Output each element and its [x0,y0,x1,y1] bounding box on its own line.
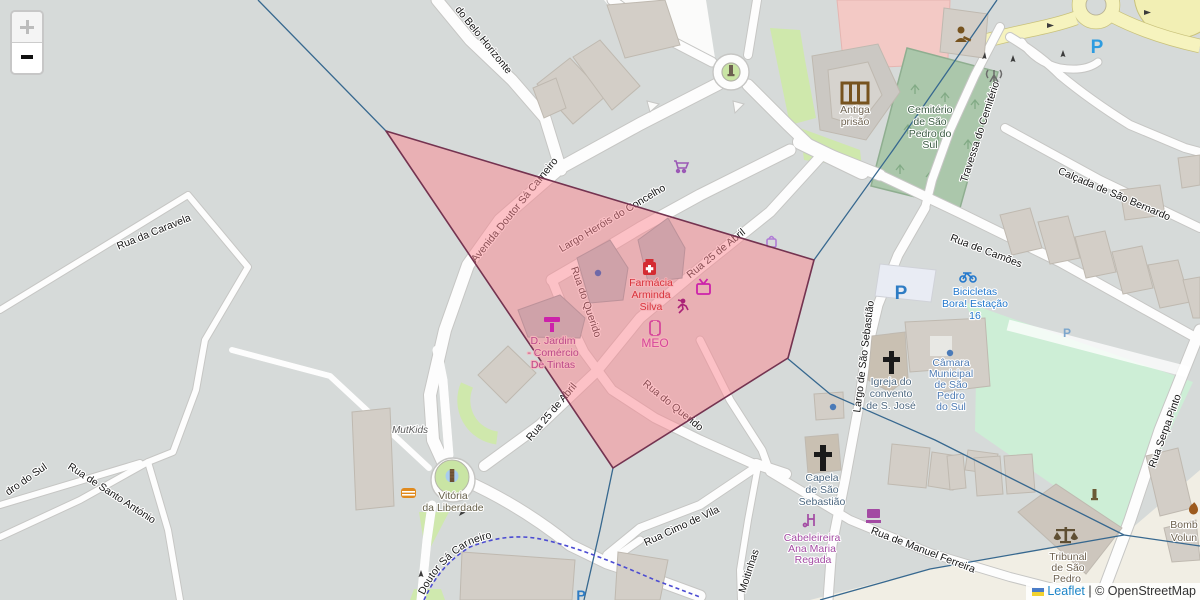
svg-text:16: 16 [969,310,981,322]
svg-text:- Comércio: - Comércio [527,347,579,359]
svg-text:convento: convento [870,388,913,400]
svg-text:da Liberdade: da Liberdade [422,502,483,514]
svg-text:P: P [576,587,585,600]
svg-text:Sebastião: Sebastião [799,496,846,508]
svg-text:Arminda: Arminda [631,289,670,301]
svg-text:Sul: Sul [922,139,937,151]
svg-text:de S. José: de S. José [866,400,916,412]
svg-text:Silva: Silva [640,301,663,313]
svg-text:MEO: MEO [641,336,668,350]
svg-text:Regada: Regada [795,554,832,566]
svg-text:Antiga: Antiga [840,104,870,116]
svg-text:D. Jardim: D. Jardim [531,335,576,347]
svg-text:P: P [1091,37,1104,58]
svg-text:Farmácia: Farmácia [629,277,673,289]
svg-text:Bora! Estação: Bora! Estação [942,298,1008,310]
svg-text:de São: de São [805,484,838,496]
svg-text:Volun: Volun [1171,532,1197,544]
svg-text:P: P [895,283,908,304]
svg-text:MutKids: MutKids [392,425,428,436]
svg-text:de São: de São [913,116,946,128]
svg-text:Igreja do: Igreja do [871,376,912,388]
svg-text:do Sul: do Sul [936,401,966,413]
svg-text:Bomb: Bomb [1170,519,1198,531]
svg-text:Vitória: Vitória [438,490,468,502]
svg-text:prisão: prisão [841,116,870,128]
svg-text:Capela: Capela [805,472,838,484]
svg-text:De Tintas: De Tintas [531,359,575,371]
svg-text:P: P [1063,326,1071,340]
svg-text:Bicicletas: Bicicletas [953,286,997,298]
svg-text:Cemitério: Cemitério [908,104,953,116]
